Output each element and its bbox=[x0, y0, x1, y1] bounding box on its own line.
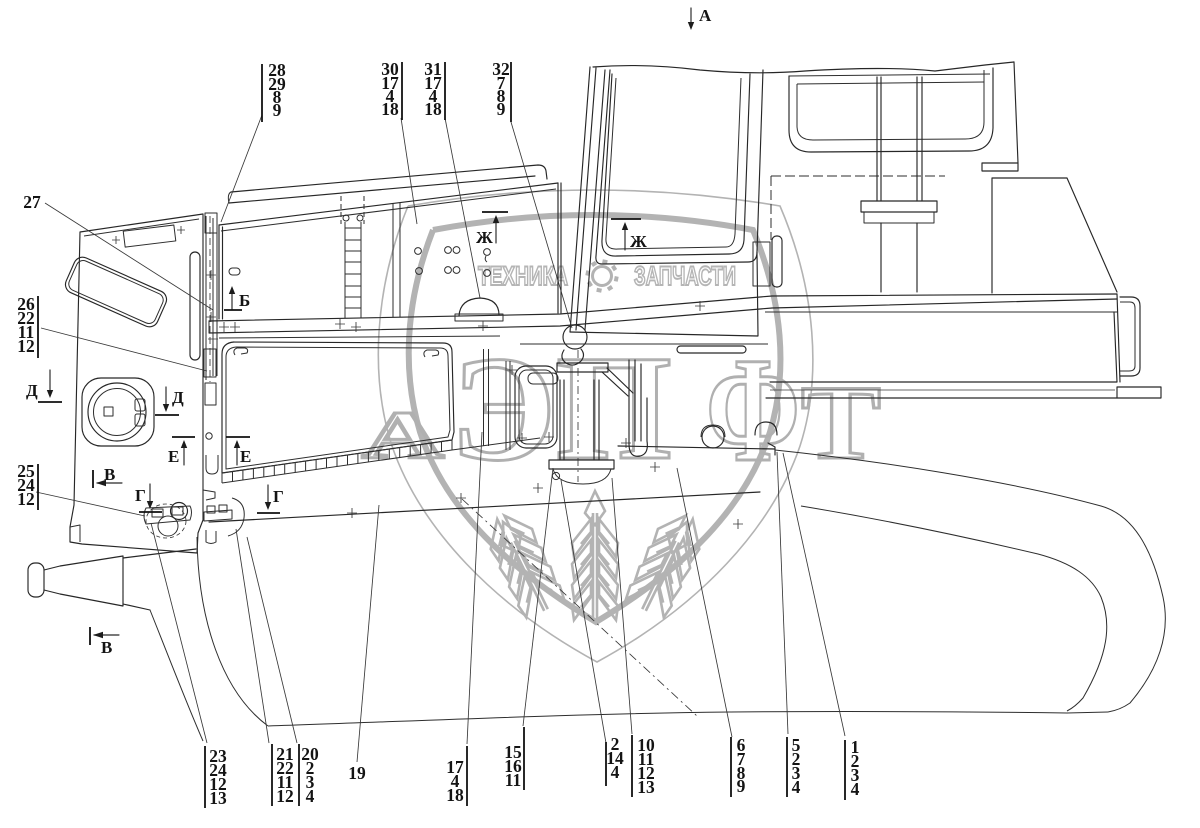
svg-text:12: 12 bbox=[17, 489, 35, 509]
svg-text:9: 9 bbox=[273, 100, 282, 120]
svg-text:ТЕХНИКА: ТЕХНИКА bbox=[478, 261, 568, 291]
svg-text:4: 4 bbox=[792, 777, 801, 797]
svg-text:18: 18 bbox=[424, 99, 442, 119]
svg-text:4: 4 bbox=[611, 762, 620, 782]
svg-text:13: 13 bbox=[637, 777, 655, 797]
svg-text:Э: Э bbox=[450, 326, 556, 492]
svg-text:Ж: Ж bbox=[476, 228, 493, 247]
svg-text:Е: Е bbox=[240, 447, 251, 466]
svg-text:Д: Д bbox=[172, 388, 184, 407]
svg-text:В: В bbox=[104, 465, 115, 484]
svg-text:12: 12 bbox=[276, 786, 294, 806]
svg-text:13: 13 bbox=[209, 788, 227, 808]
svg-text:Ж: Ж bbox=[630, 232, 647, 251]
svg-text:В: В bbox=[101, 638, 112, 657]
svg-text:Е: Е bbox=[168, 447, 179, 466]
svg-text:18: 18 bbox=[446, 785, 464, 805]
svg-text:9: 9 bbox=[497, 99, 506, 119]
svg-text:18: 18 bbox=[381, 99, 399, 119]
svg-text:Б: Б bbox=[239, 291, 250, 310]
svg-text:11: 11 bbox=[505, 770, 522, 790]
svg-text:27: 27 bbox=[23, 192, 41, 212]
svg-text:ЗАПЧАСТИ: ЗАПЧАСТИ bbox=[634, 261, 736, 291]
svg-text:12: 12 bbox=[17, 336, 35, 356]
svg-text:19: 19 bbox=[348, 763, 366, 783]
svg-text:9: 9 bbox=[737, 776, 746, 796]
svg-text:4: 4 bbox=[306, 786, 315, 806]
svg-text:Г: Г bbox=[273, 487, 284, 506]
svg-text:Г: Г bbox=[135, 486, 146, 505]
svg-text:Д: Д bbox=[26, 381, 38, 400]
svg-text:4: 4 bbox=[851, 779, 860, 799]
svg-text:А: А bbox=[699, 6, 712, 25]
